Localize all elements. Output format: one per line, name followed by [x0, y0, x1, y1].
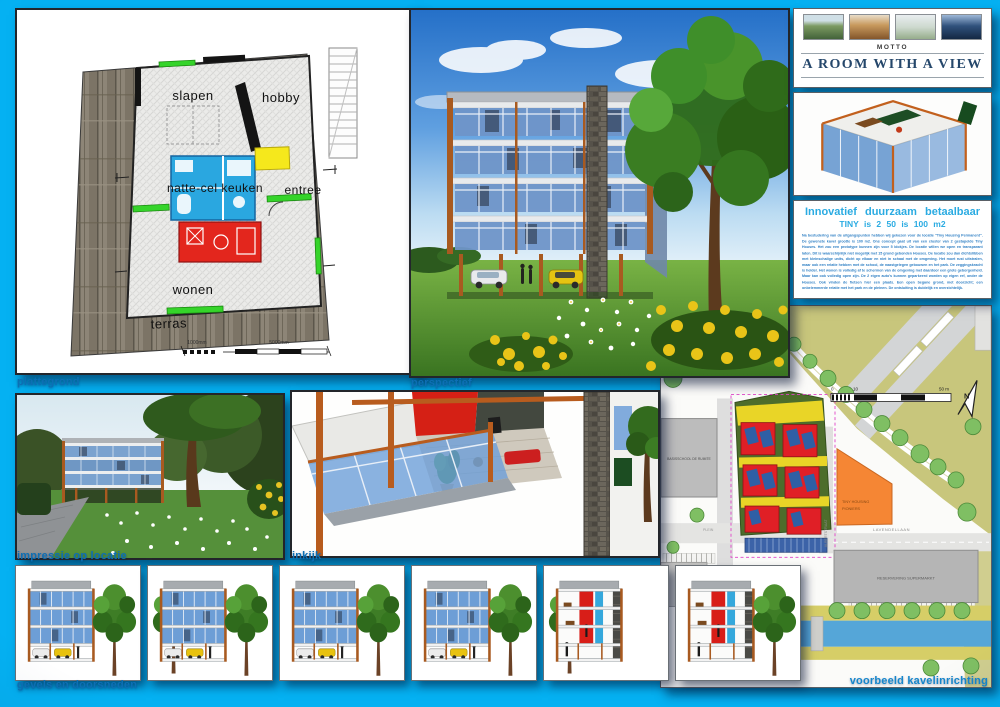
divider [801, 77, 984, 78]
tree-graphic-right [225, 584, 268, 675]
elevation-panel-1 [15, 565, 141, 681]
room-label-wonen: wonen [172, 282, 214, 297]
school-label: BASISSCHOOL DE RUIMTE [667, 457, 711, 461]
concept-title: Innovatief duurzaam betaalbaar [802, 206, 983, 218]
elevation-panel-5 [543, 565, 669, 681]
building-elevation [160, 581, 227, 662]
plein-label: PLEIN [703, 528, 714, 532]
perspective-render [411, 10, 788, 376]
red-core [179, 222, 261, 262]
inkijk-cutaway [292, 392, 658, 556]
tree-graphic-right [93, 584, 136, 675]
caption-impressie: impressie op locatie [17, 550, 127, 562]
motto-photo-light-room [895, 14, 936, 40]
parked-cars [165, 645, 212, 660]
concept-body: Na bestudering van de uitgangspunten heb… [802, 233, 983, 291]
impression-panel [15, 393, 285, 560]
pioniers-label-2: PIONIERS [842, 507, 861, 511]
svg-text:1000mm: 1000mm [187, 340, 206, 346]
parked-cars [33, 645, 80, 660]
tree-graphic-right [753, 584, 796, 675]
room-label-nattecel: natte-cel keuken [167, 181, 263, 195]
staircase [329, 48, 357, 158]
impression-render [17, 395, 283, 558]
concept-body-wrap: Na bestudering van de uitgangspunten heb… [802, 233, 983, 297]
perspective-panel [409, 8, 790, 378]
elevation-drawing [16, 566, 140, 680]
svg-text:N: N [964, 391, 969, 400]
elevation-drawing [544, 566, 668, 680]
concept-text-panel: Innovatief duurzaam betaalbaar TINY is 2… [793, 200, 992, 299]
elevation-drawing [280, 566, 404, 680]
hedge [17, 483, 51, 515]
motto-kicker: MOTTO [801, 44, 984, 51]
lavendellaan-label: LAVENDELLAAN [873, 527, 910, 532]
motto-photo-evening [941, 14, 982, 40]
svg-text:10: 10 [853, 386, 858, 391]
building-elevation [556, 581, 623, 662]
yellow-room [255, 147, 290, 170]
school-building: BASISSCHOOL DE RUIMTE [661, 419, 717, 497]
caption-plattegrond: plattegrond [17, 376, 80, 388]
building-elevation [424, 581, 491, 662]
divider [801, 53, 984, 54]
svg-text:50 m: 50 m [939, 386, 949, 391]
motto-title: A ROOM WITH A VIEW [801, 56, 984, 75]
parked-cars [297, 645, 344, 660]
elevation-panel-4 [411, 565, 537, 681]
motto-photo-garden [803, 14, 844, 40]
motto-photo-wood-interior [849, 14, 890, 40]
elevation-panel-6 [675, 565, 801, 681]
floorplan-panel: slapen hobby natte-cel keuken entree won… [15, 8, 418, 375]
svg-text:5000mm: 5000mm [269, 340, 288, 346]
axonometric-cutaway-panel [793, 92, 992, 196]
parked-cars [429, 645, 476, 660]
concept-subtitle: TINY is 2 50 is 100 m2 [802, 219, 983, 229]
supermarkt-building: RESERVERING SUPERMARKT [834, 550, 978, 602]
supermarkt-label: RESERVERING SUPERMARKT [877, 575, 935, 580]
stone-pillar [584, 392, 610, 556]
elevation-drawing [412, 566, 536, 680]
caption-perspectief: perspectief [411, 377, 472, 389]
building-elevation [28, 581, 95, 662]
caption-inkijk: inkijk [292, 550, 321, 562]
floorplan-drawing: slapen hobby natte-cel keuken entree won… [17, 10, 416, 373]
room-label-slapen: slapen [172, 88, 213, 103]
motto-panel: MOTTO A ROOM WITH A VIEW [793, 8, 992, 88]
elevation-drawing [148, 566, 272, 680]
room-label-terras: terras [150, 315, 187, 331]
elevation-drawing [676, 566, 800, 680]
motto-photo-strip [801, 14, 984, 40]
caption-gevels: gevels en doorsneden [17, 679, 137, 691]
building-elevation [292, 581, 359, 662]
pioniers-label-1: TINY HOUSING [842, 500, 869, 504]
axonometric-cutaway [794, 93, 991, 195]
elevation-row [15, 565, 807, 681]
elevation-panel-2 [147, 565, 273, 681]
tree-graphic-right [489, 584, 532, 675]
tree-graphic-right [357, 584, 400, 675]
floor-band [449, 102, 651, 136]
tiny-housing-cluster [731, 391, 835, 557]
building-elevation [688, 581, 755, 662]
caption-kavel: voorbeeld kavelinrichting [700, 675, 988, 687]
inkijk-cutaway-panel [290, 390, 660, 558]
room-label-hobby: hobby [262, 90, 300, 105]
room-label-entree: entree [284, 183, 321, 197]
albertstraat-label: ALBERTSTRAAT [824, 519, 828, 548]
impression-building [62, 438, 164, 503]
elevation-panel-3 [279, 565, 405, 681]
stone-chimney [587, 86, 607, 298]
